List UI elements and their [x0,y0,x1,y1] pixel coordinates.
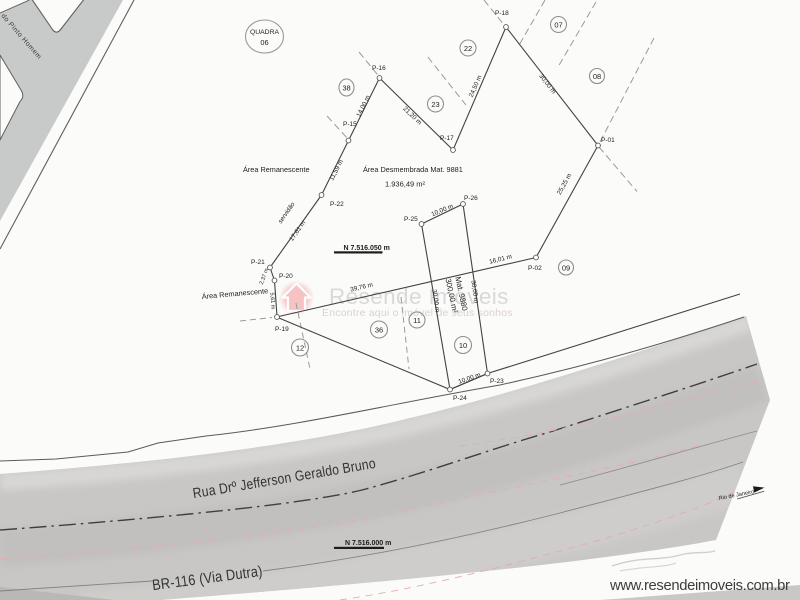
svg-text:Área Remanescente: Área Remanescente [243,165,310,174]
svg-text:36: 36 [375,326,383,335]
svg-text:P-21: P-21 [251,259,265,266]
svg-text:P-18: P-18 [495,10,509,17]
svg-text:P-02: P-02 [528,265,542,272]
svg-text:1.936,49 m²: 1.936,49 m² [385,180,426,189]
svg-text:12: 12 [296,344,304,353]
svg-text:11: 11 [413,316,421,325]
svg-text:www.resendeimoveis.com.br: www.resendeimoveis.com.br [609,578,790,594]
svg-text:06: 06 [260,38,268,47]
svg-text:Área Desmembrada Mat. 9881: Área Desmembrada Mat. 9881 [363,165,463,174]
svg-text:P-20: P-20 [279,273,293,280]
svg-text:N 7.516.050 m: N 7.516.050 m [344,245,390,252]
svg-text:P-22: P-22 [330,201,344,208]
svg-text:P-16: P-16 [372,65,386,72]
svg-text:23: 23 [431,100,439,109]
svg-text:P-19: P-19 [275,326,289,333]
svg-text:5,61 m: 5,61 m [268,292,275,310]
svg-text:09: 09 [562,264,570,273]
svg-text:P-26: P-26 [464,195,478,202]
svg-text:07: 07 [554,21,562,30]
svg-text:P-01: P-01 [601,137,615,144]
svg-text:QUADRA: QUADRA [250,29,280,36]
svg-text:P-25: P-25 [404,216,418,223]
svg-text:38: 38 [342,84,350,93]
svg-text:P-23: P-23 [490,378,504,385]
svg-text:P-17: P-17 [440,135,454,142]
svg-text:N 7.516.000 m: N 7.516.000 m [345,540,391,547]
svg-text:08: 08 [593,72,601,81]
svg-text:10: 10 [459,341,467,350]
svg-text:22: 22 [464,44,472,53]
svg-text:P-24: P-24 [453,395,467,402]
svg-text:P-15: P-15 [343,121,357,128]
